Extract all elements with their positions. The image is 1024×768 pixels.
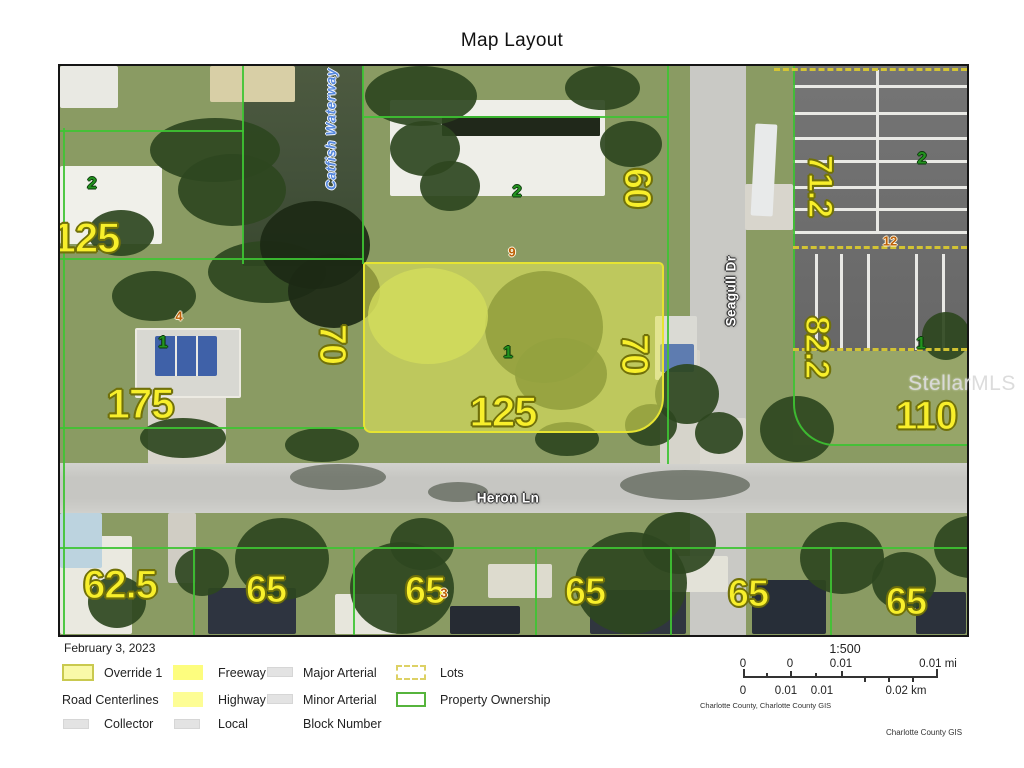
dimension-label: 70	[313, 324, 351, 364]
property-line	[670, 547, 672, 635]
scale-tick	[841, 671, 843, 678]
parcel-number: 1	[158, 334, 167, 351]
scale-ratio: 1:500	[829, 642, 860, 656]
property-line	[60, 427, 364, 429]
legend-label-major-arterial: Major Arterial	[303, 665, 377, 681]
tree-canopy	[285, 428, 359, 462]
property-line	[364, 116, 668, 118]
lot-line-dashed	[793, 246, 967, 249]
legend-label-override: Override 1	[104, 665, 162, 681]
dimension-label: 65	[886, 583, 926, 621]
dimension-label: 65	[405, 572, 445, 610]
tree-canopy	[112, 271, 196, 321]
building	[60, 66, 118, 108]
legend-label-lots: Lots	[440, 665, 464, 681]
legend-label-collector: Collector	[104, 716, 153, 732]
legend-label-property-ownership: Property Ownership	[440, 692, 550, 708]
dimension-label: 62.5	[83, 565, 157, 605]
scale-tick	[790, 671, 792, 678]
dimension-label: 110	[895, 396, 957, 436]
scale-tick	[912, 676, 914, 682]
waterway-label: Catfish Waterway	[324, 68, 338, 190]
legend-swatch-local	[174, 719, 200, 729]
dimension-label: 65	[565, 573, 605, 611]
dimension-label: 175	[106, 383, 173, 425]
tree-canopy	[175, 548, 229, 596]
scale-top-label: 0.01	[830, 658, 852, 670]
parcel-number: 1	[503, 344, 512, 361]
block-number: 12	[883, 235, 897, 248]
legend-label-freeway: Freeway	[218, 665, 266, 681]
pool-screen	[60, 513, 102, 568]
property-line	[535, 547, 537, 635]
scale-tick	[936, 669, 938, 678]
tree-canopy	[420, 161, 480, 211]
property-line	[353, 547, 355, 635]
building	[450, 606, 520, 634]
legend-label-local: Local	[218, 716, 248, 732]
parcel-number: 2	[87, 175, 96, 192]
legend-swatch-major-arterial	[267, 667, 293, 677]
dimension-label: 125	[58, 217, 120, 259]
legend-swatch-minor-arterial	[267, 694, 293, 704]
scale-top-label: 0	[787, 658, 793, 670]
legend-swatch-lots	[396, 665, 426, 680]
legend-swatch-freeway	[173, 665, 203, 680]
legend-swatch-collector	[63, 719, 89, 729]
pool-grid	[175, 336, 177, 376]
stellar-mls-watermark: StellarMLS	[908, 372, 1016, 396]
scale-tick	[815, 673, 817, 678]
map-canvas: 125 175 125 110 62.5 65 65 65 65 65 70 7…	[58, 64, 969, 637]
legend-label-minor-arterial: Minor Arterial	[303, 692, 377, 708]
dimension-label: 82.2	[800, 316, 834, 378]
lot-line-dashed	[774, 68, 967, 71]
dimension-label: 65	[246, 571, 286, 609]
parcel-number: 1	[916, 335, 925, 352]
legend-swatch-property-ownership	[396, 692, 426, 707]
building	[488, 564, 552, 598]
dimension-label: 125	[469, 391, 536, 433]
block-number: 4	[175, 310, 182, 323]
palm-shadow	[620, 470, 750, 500]
legend-label-block-number: Block Number	[303, 716, 382, 732]
dimension-label: 70	[615, 334, 653, 374]
tree-canopy	[565, 66, 640, 110]
parcel-number: 2	[917, 150, 926, 167]
scale-tick	[743, 669, 745, 678]
tree-canopy	[695, 412, 743, 454]
page-title: Map Layout	[461, 30, 563, 52]
scale-attribution: Charlotte County, Charlotte County GIS	[700, 701, 831, 710]
scale-bottom-label: 0.01	[775, 685, 797, 697]
scale-tick	[864, 676, 866, 682]
block-number: 3	[440, 587, 447, 600]
legend-label-highway: Highway	[218, 692, 266, 708]
dimension-label: 65	[728, 575, 768, 613]
legend-label-road-centerlines: Road Centerlines	[62, 692, 159, 708]
parcel-number: 2	[512, 183, 521, 200]
dimension-label: 60	[618, 168, 656, 208]
property-line	[242, 66, 244, 264]
legend-swatch-override	[62, 664, 94, 681]
scale-tick	[888, 676, 890, 682]
building	[210, 66, 295, 102]
road-heron-ln	[60, 463, 967, 513]
footer-credit: Charlotte County GIS	[886, 728, 962, 737]
dimension-label: 71.2	[803, 155, 837, 217]
tree-canopy	[642, 512, 716, 574]
palm-shadow	[290, 464, 386, 490]
property-line	[63, 128, 65, 635]
legend-swatch-highway	[173, 692, 203, 707]
street-label-heron-ln: Heron Ln	[477, 491, 539, 505]
scale-top-label: 0.01 mi	[919, 658, 957, 670]
scale-bottom-label: 0.02 km	[886, 685, 927, 697]
property-line	[193, 547, 195, 635]
pool-grid	[196, 336, 198, 376]
property-line	[667, 66, 669, 464]
block-number: 9	[508, 246, 515, 259]
map-date: February 3, 2023	[64, 641, 155, 655]
property-line	[362, 66, 364, 264]
scale-bottom-label: 0	[740, 685, 746, 697]
tree-canopy	[178, 154, 286, 226]
tree-canopy	[390, 518, 454, 570]
property-line	[60, 130, 244, 132]
scale-bottom-label: 0.01	[811, 685, 833, 697]
roof-shadow	[442, 116, 600, 136]
street-label-seagull-dr: Seagull Dr	[724, 256, 738, 327]
property-line	[830, 547, 832, 635]
scale-bar	[743, 676, 937, 678]
tree-canopy	[600, 121, 662, 167]
scale-tick	[766, 673, 768, 678]
